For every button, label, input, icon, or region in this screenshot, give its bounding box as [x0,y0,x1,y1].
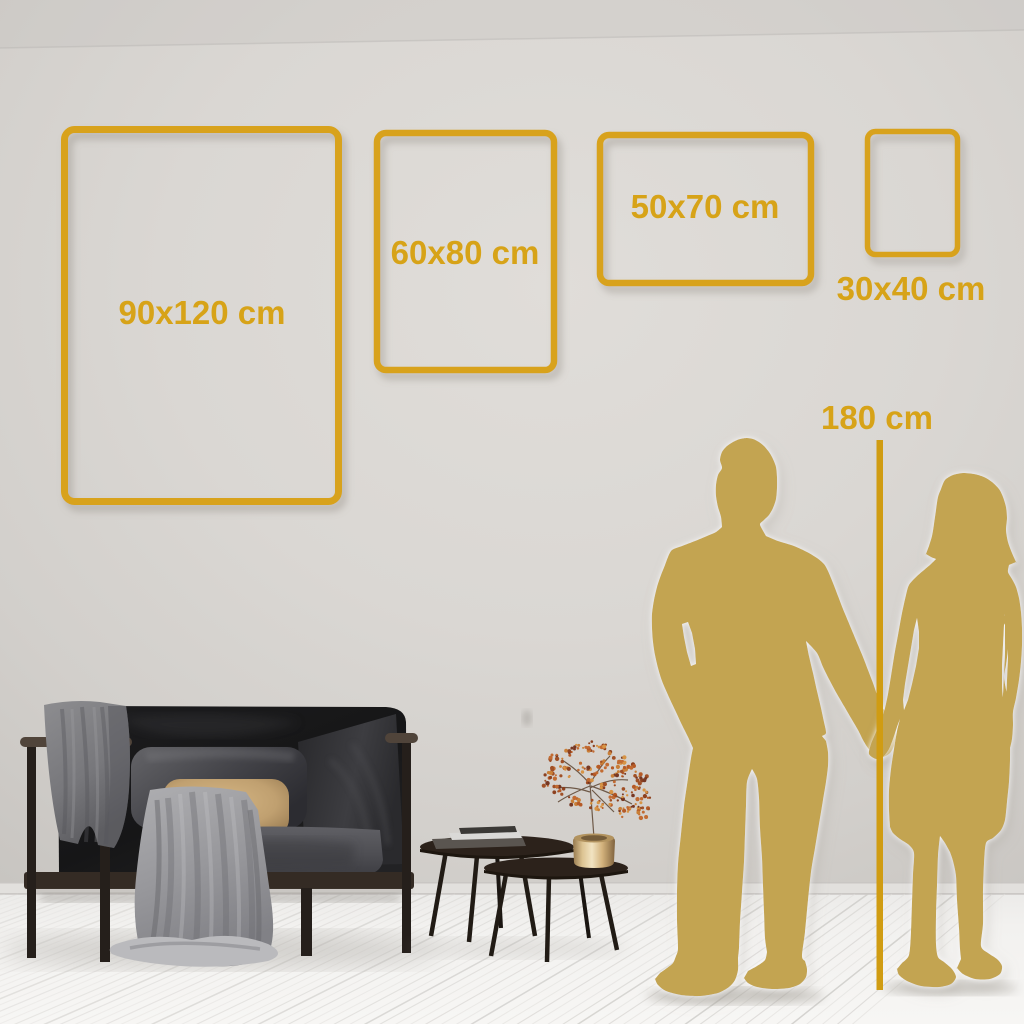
svg-text:50x70 cm: 50x70 cm [631,188,780,225]
svg-text:60x80 cm: 60x80 cm [391,234,540,271]
svg-text:30x40 cm: 30x40 cm [837,270,986,307]
svg-text:90x120 cm: 90x120 cm [119,294,286,331]
svg-text:180 cm: 180 cm [821,399,933,436]
